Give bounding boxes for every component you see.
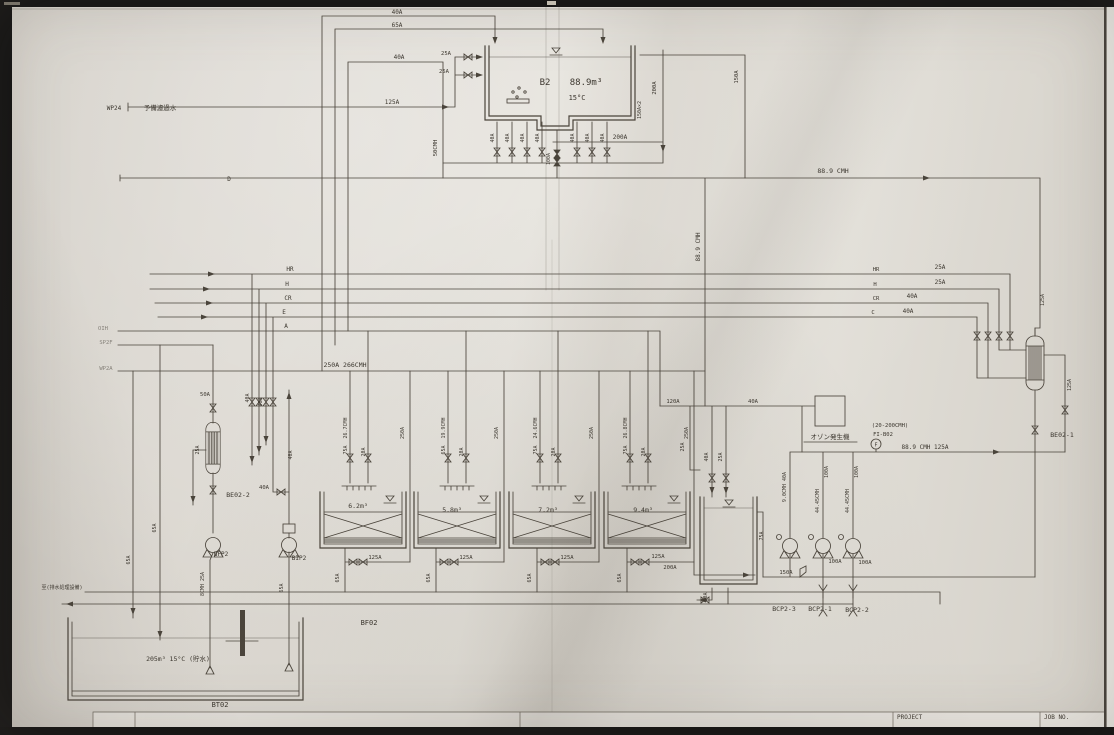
f2-cmh: 19.9CMH bbox=[441, 417, 447, 438]
shell-tube-icon bbox=[206, 422, 220, 473]
b2-volume: 88.9m³ bbox=[570, 78, 603, 88]
riser1-250a: 250A bbox=[400, 427, 406, 439]
f2-volume: 5.8m³ bbox=[442, 506, 462, 514]
f1-20a: 20A bbox=[361, 447, 367, 456]
bcp2-1-tag: BCP2-1 bbox=[808, 605, 832, 613]
filter-tank-4 bbox=[604, 492, 690, 548]
left-riser-65a-2: 65A bbox=[152, 523, 158, 532]
fi-range: (20-200CMH) bbox=[872, 423, 908, 429]
bip2-suction-65a: 65A bbox=[279, 583, 285, 592]
f3-volume: 7.2m³ bbox=[538, 506, 558, 514]
pipes-ozone-branch bbox=[660, 396, 857, 497]
pumps-bcp2 bbox=[62, 535, 1035, 617]
lriser-40a-2: 40A bbox=[258, 397, 264, 406]
be02-1-inlet-125a: 125A bbox=[1040, 294, 1046, 306]
b2-outlet-40a-2: 40A bbox=[505, 133, 511, 142]
header-250a: 250A 266CMH bbox=[323, 361, 366, 369]
pump-header-size: 88.9 CMH 125A bbox=[902, 444, 949, 451]
filter-tank-1 bbox=[320, 492, 406, 548]
water-level-icon bbox=[384, 496, 396, 503]
rt-50a: 50A bbox=[703, 592, 709, 601]
pipes-b2-outlets bbox=[443, 50, 745, 178]
line-d-tag: D bbox=[227, 176, 231, 183]
f4-75a: 75A bbox=[623, 445, 629, 454]
r-hr-tag: HR bbox=[873, 267, 880, 273]
wp24-tag: WP24 bbox=[107, 105, 122, 112]
gate-valve-icon bbox=[800, 566, 806, 577]
b2-outlet-40a-6: 40A bbox=[585, 133, 591, 142]
heat-exchanger-be02-1 bbox=[1026, 328, 1068, 577]
bcp1-suction-100a: 100A bbox=[828, 559, 842, 565]
bf02-tag: BF02 bbox=[361, 619, 378, 627]
loop-top-40a: 40A bbox=[392, 9, 403, 16]
riser2-250a: 250A bbox=[494, 427, 500, 439]
bcp2-riser-100a: 100A bbox=[854, 466, 860, 478]
b2-outlet-40a-7: 40A bbox=[600, 133, 606, 142]
be02-1-loop-125a: 125A bbox=[1067, 379, 1073, 391]
margin-wp2a: WP2A bbox=[99, 366, 113, 372]
bcp1-riser-100a: 100A bbox=[824, 466, 830, 478]
distributor-icon bbox=[440, 486, 474, 490]
filter-tanks bbox=[320, 492, 690, 548]
f3-20a: 20A bbox=[551, 447, 557, 456]
be02-2-tag: BE02-2 bbox=[226, 491, 250, 499]
sheet-edge-right bbox=[1104, 7, 1107, 727]
b2-outlet-100a: 100A bbox=[546, 153, 552, 165]
priming-pot bbox=[283, 524, 295, 533]
d4-200a: 200A bbox=[663, 565, 677, 571]
heat-exchanger-be02-2 bbox=[131, 345, 300, 674]
fi-letter: F bbox=[874, 443, 877, 449]
drain-note: 至(排水処理設備) bbox=[41, 584, 82, 591]
b2-inlet-25a-upper: 25A bbox=[441, 51, 452, 57]
titleblock-jobno-label: JOB NO. bbox=[1044, 714, 1069, 721]
b2-left-50cmh: 50CMH bbox=[433, 140, 439, 157]
tank-b2 bbox=[485, 46, 635, 130]
ozone-generator bbox=[815, 396, 845, 426]
bfp2-suction: 8CMH 25A bbox=[200, 572, 206, 596]
line-cr-tag: CR bbox=[284, 295, 292, 302]
lriser-40a-1: 40A bbox=[245, 393, 251, 402]
overflow-cmh: 88.9 CMH bbox=[817, 167, 848, 175]
line-h-tag: H bbox=[285, 281, 289, 288]
d4-125a: 125A bbox=[651, 554, 665, 560]
suction-tank bbox=[697, 497, 763, 604]
wp24-desc: 予備濾過水 bbox=[144, 103, 177, 112]
line-a-tag: A bbox=[284, 323, 288, 330]
pipes-filter-drains bbox=[345, 548, 755, 592]
bt02-tag: BT02 bbox=[212, 701, 229, 709]
bcp2-3-tag: BCP2-3 bbox=[772, 605, 796, 613]
water-level-icon bbox=[550, 48, 562, 55]
d4-65a: 65A bbox=[617, 573, 623, 582]
b2-200a-line: 200A bbox=[613, 134, 628, 141]
downcomer-cmh: 88.9 CMH bbox=[695, 232, 702, 261]
f1-75a: 75A bbox=[343, 445, 349, 454]
f2-20a: 20A bbox=[459, 447, 465, 456]
bip2-valve-40a: 40A bbox=[259, 485, 270, 491]
riser4-250a: 250A bbox=[684, 427, 690, 439]
f4-volume: 9.4m³ bbox=[633, 506, 653, 514]
tank-baffle bbox=[240, 610, 245, 656]
distributor-icon bbox=[622, 486, 656, 490]
f3-75a: 75A bbox=[533, 445, 539, 454]
bt02-volume: 205m³ 15°C (貯水) bbox=[146, 654, 210, 663]
distributor-icon bbox=[532, 486, 566, 490]
margin-sp2f: SP2F bbox=[99, 340, 112, 346]
b2-outlet-40a-5: 40A bbox=[570, 133, 576, 142]
bcp2-2-tag: BCP2-2 bbox=[845, 606, 869, 614]
bcp3-riser: 9.0CMH 40A bbox=[782, 472, 788, 502]
pipes-pump-discharge bbox=[790, 439, 1065, 538]
water-level-icon bbox=[573, 496, 585, 503]
r-cr-tag: CR bbox=[873, 296, 880, 302]
loop-65a: 65A bbox=[392, 22, 403, 29]
d3-65a: 65A bbox=[527, 573, 533, 582]
d2-125a: 125A bbox=[459, 555, 473, 561]
ozone-label: オゾン発生機 bbox=[811, 432, 851, 441]
scanned-pid-sheet: WP24予備濾過水125AD40A65A40A25A25AB288.9m³15°… bbox=[0, 0, 1114, 735]
line-e-tag: E bbox=[282, 309, 286, 316]
b2-outlet-40a-3: 40A bbox=[520, 133, 526, 142]
d1-65a: 65A bbox=[335, 573, 341, 582]
line-120a: 120A bbox=[666, 399, 680, 405]
left-riser-65a-1: 65A bbox=[126, 555, 132, 564]
be02-2-25a: 25A bbox=[195, 445, 201, 454]
bcp2-riser-cmh: 44.45CMH bbox=[845, 489, 851, 513]
bcp2-suction-100a: 100A bbox=[858, 560, 872, 566]
b2-150a-x2: 150A×2 bbox=[637, 101, 643, 119]
r-hr-size: 25A bbox=[935, 264, 946, 271]
margin-oih: OIH bbox=[98, 326, 108, 332]
water-level-icon bbox=[668, 496, 680, 503]
bip2-tag: BIP2 bbox=[292, 555, 307, 562]
rt-25a: 25A bbox=[680, 442, 686, 451]
d3-125a: 125A bbox=[560, 555, 574, 561]
rt-40a: 40A bbox=[704, 452, 710, 461]
b2-200a-riser: 200A bbox=[652, 81, 658, 95]
wp24-pipe-size: 125A bbox=[385, 99, 400, 106]
b2-150a-riser: 150A bbox=[734, 70, 740, 84]
d2-65a: 65A bbox=[426, 573, 432, 582]
sheet-edge-left bbox=[0, 0, 12, 735]
f4-20a: 20A bbox=[641, 447, 647, 456]
sheet-edge-bottom bbox=[0, 727, 1114, 735]
f3-cmh: 24.6CMH bbox=[533, 417, 539, 438]
f1-volume: 6.2m³ bbox=[348, 502, 368, 510]
f1-cmh: 26.7CMH bbox=[343, 417, 349, 438]
b2-temp: 15°C bbox=[569, 94, 586, 102]
r-h-size: 25A bbox=[935, 279, 946, 286]
b2-outlet-40a-1: 40A bbox=[490, 133, 496, 142]
titleblock-project-label: PROJECT bbox=[897, 714, 923, 721]
r-h-tag: H bbox=[873, 282, 876, 288]
suction-150a: 150A bbox=[779, 570, 793, 576]
f4-cmh: 26.8CMH bbox=[623, 417, 629, 438]
f2-65a: 65A bbox=[441, 445, 447, 454]
distributor-icon bbox=[342, 486, 376, 490]
loop-40a: 40A bbox=[394, 54, 405, 61]
rt-25a-2: 25A bbox=[718, 452, 724, 461]
r-cr-size: 40A bbox=[907, 293, 918, 300]
line-hr-tag: HR bbox=[286, 266, 294, 273]
pipes-distribution bbox=[118, 272, 1026, 496]
b2-outlet-40a-4: 40A bbox=[535, 133, 541, 142]
be02-1-tag: BE02-1 bbox=[1050, 431, 1074, 439]
shell-tube-icon bbox=[1026, 336, 1044, 390]
sheet-edge-top bbox=[0, 0, 1114, 7]
b2-tag: B2 bbox=[540, 78, 551, 88]
pipes-top-loop bbox=[128, 16, 606, 371]
bip2-riser-40a: 40A bbox=[288, 450, 294, 459]
gauge-icon bbox=[839, 535, 844, 540]
gauge-icon bbox=[777, 535, 782, 540]
bcp1-riser-cmh: 44.45CMH bbox=[815, 489, 821, 513]
r-c-size: 40A bbox=[903, 308, 914, 315]
riser3-250a: 250A bbox=[589, 427, 595, 439]
r-c-tag: C bbox=[871, 310, 874, 316]
filter-tank-2 bbox=[414, 492, 500, 548]
water-level-icon bbox=[723, 500, 735, 507]
gauge-icon bbox=[809, 535, 814, 540]
d1-125a: 125A bbox=[368, 555, 382, 561]
piping-diagram: WP24予備濾過水125AD40A65A40A25A25AB288.9m³15°… bbox=[0, 0, 1114, 735]
bfp2-tag: BFP2 bbox=[214, 551, 229, 558]
rt-75a: 75A bbox=[759, 531, 765, 540]
b2-inlet-25a-lower: 25A bbox=[439, 69, 450, 75]
fi-tag: FI-B02 bbox=[873, 432, 893, 438]
be02-2-50a: 50A bbox=[200, 392, 211, 398]
line-40a: 40A bbox=[748, 399, 759, 405]
water-level-icon bbox=[478, 496, 490, 503]
